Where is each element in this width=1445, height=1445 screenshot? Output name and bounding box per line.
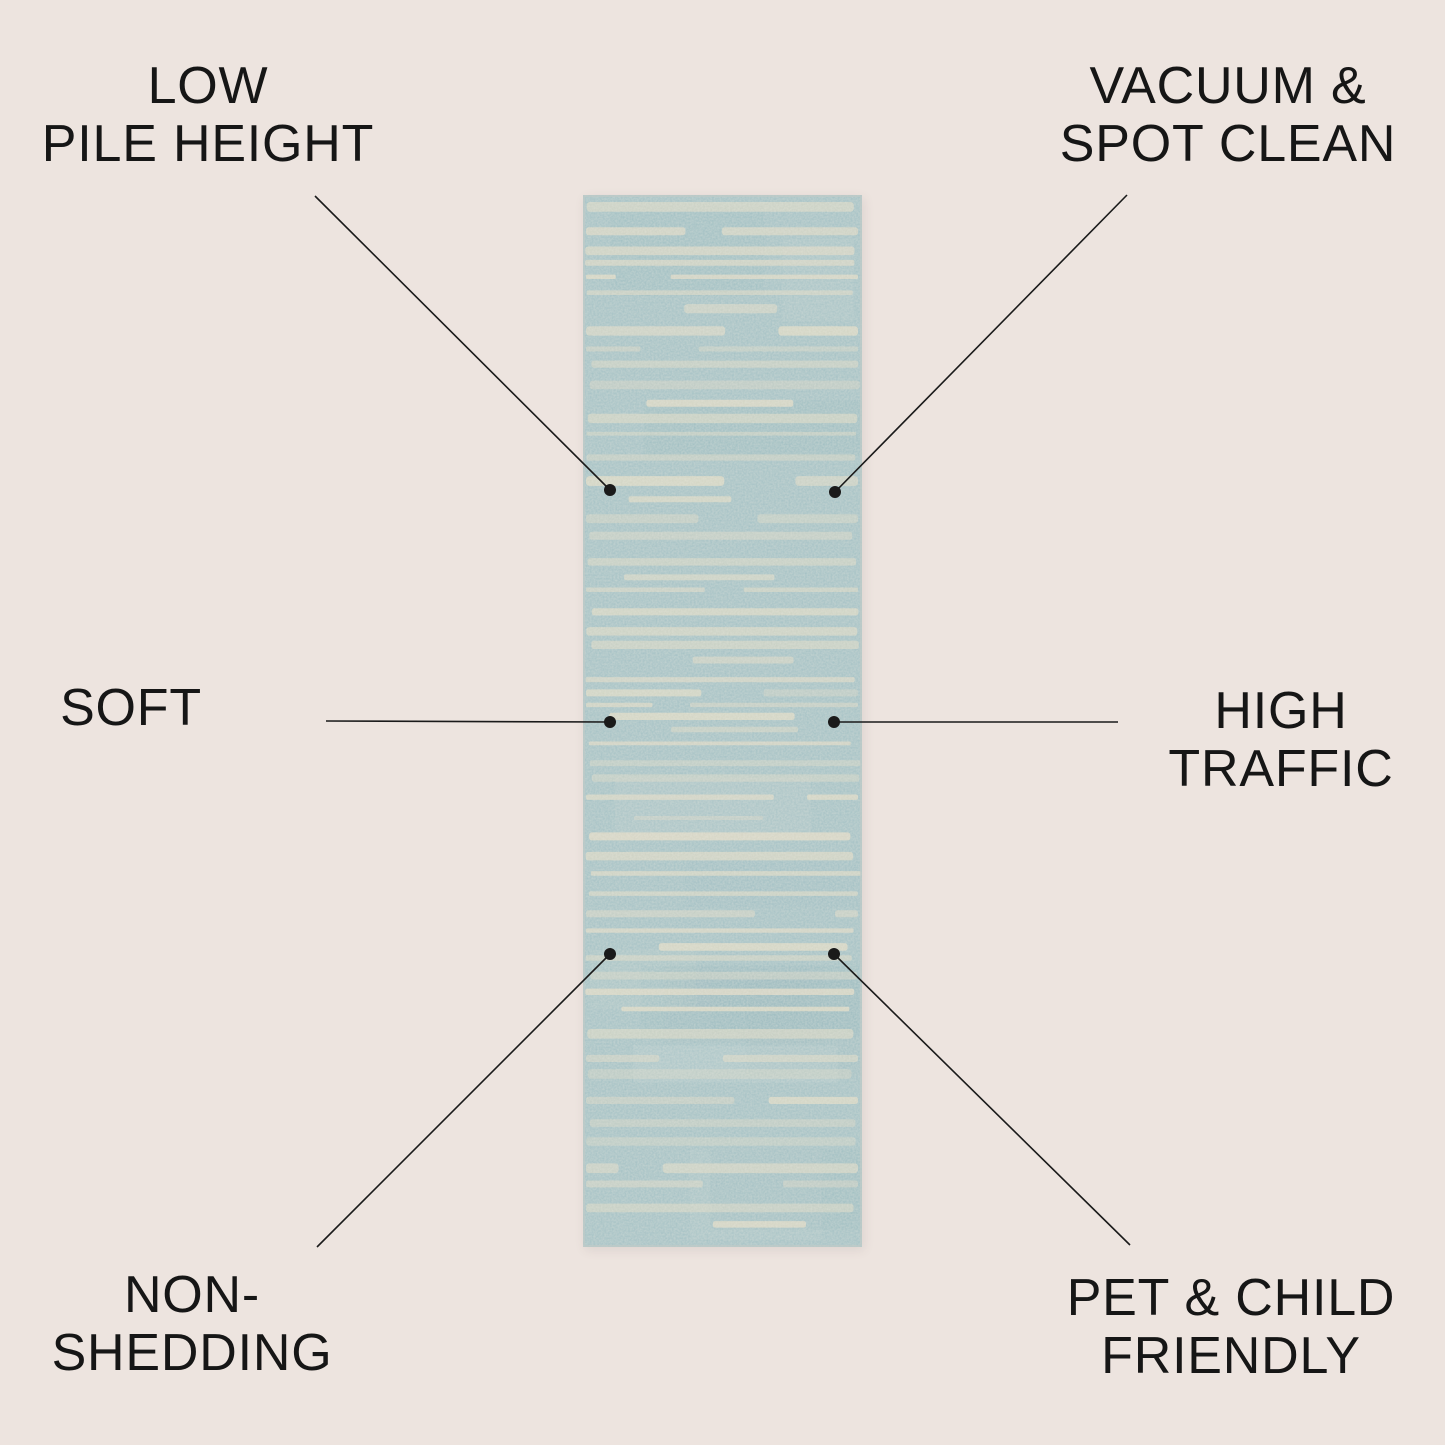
- callout-line-non-shedding: [317, 954, 610, 1247]
- callout-line-soft: [326, 721, 610, 722]
- feature-label-vacuum-spot-clean: VACUUM & SPOT CLEAN: [1060, 57, 1396, 173]
- rug-texture: [583, 195, 862, 1247]
- callout-line-vacuum-spot-clean: [835, 195, 1127, 492]
- callout-line-low-pile-height: [315, 196, 610, 490]
- feature-label-line: HIGH: [1168, 682, 1393, 740]
- callout-line-pet-child-friendly: [834, 954, 1130, 1245]
- feature-label-pet-child-friendly: PET & CHILD FRIENDLY: [1067, 1269, 1396, 1385]
- feature-label-low-pile-height: LOW PILE HEIGHT: [42, 57, 374, 173]
- feature-label-line: NON-: [52, 1266, 333, 1324]
- feature-label-line: TRAFFIC: [1168, 740, 1393, 798]
- callout-vacuum-spot-clean: [829, 195, 1127, 498]
- feature-label-line: SOFT: [60, 679, 202, 737]
- callout-high-traffic: [828, 716, 1118, 728]
- rug-grain-dark: [583, 195, 862, 1247]
- infographic-canvas: LOW PILE HEIGHT VACUUM & SPOT CLEAN SOFT…: [0, 0, 1445, 1445]
- callout-low-pile-height: [315, 196, 616, 496]
- feature-label-soft: SOFT: [60, 679, 202, 737]
- feature-label-line: SHEDDING: [52, 1324, 333, 1382]
- callout-non-shedding: [317, 948, 616, 1247]
- rug-image: [583, 195, 862, 1247]
- callout-soft: [326, 716, 616, 728]
- feature-label-high-traffic: HIGH TRAFFIC: [1168, 682, 1393, 798]
- feature-label-line: SPOT CLEAN: [1060, 115, 1396, 173]
- feature-label-line: PILE HEIGHT: [42, 115, 374, 173]
- feature-label-line: FRIENDLY: [1067, 1327, 1396, 1385]
- feature-label-non-shedding: NON- SHEDDING: [52, 1266, 333, 1382]
- feature-label-line: VACUUM &: [1060, 57, 1396, 115]
- feature-label-line: LOW: [42, 57, 374, 115]
- callout-pet-child-friendly: [828, 948, 1130, 1245]
- feature-label-line: PET & CHILD: [1067, 1269, 1396, 1327]
